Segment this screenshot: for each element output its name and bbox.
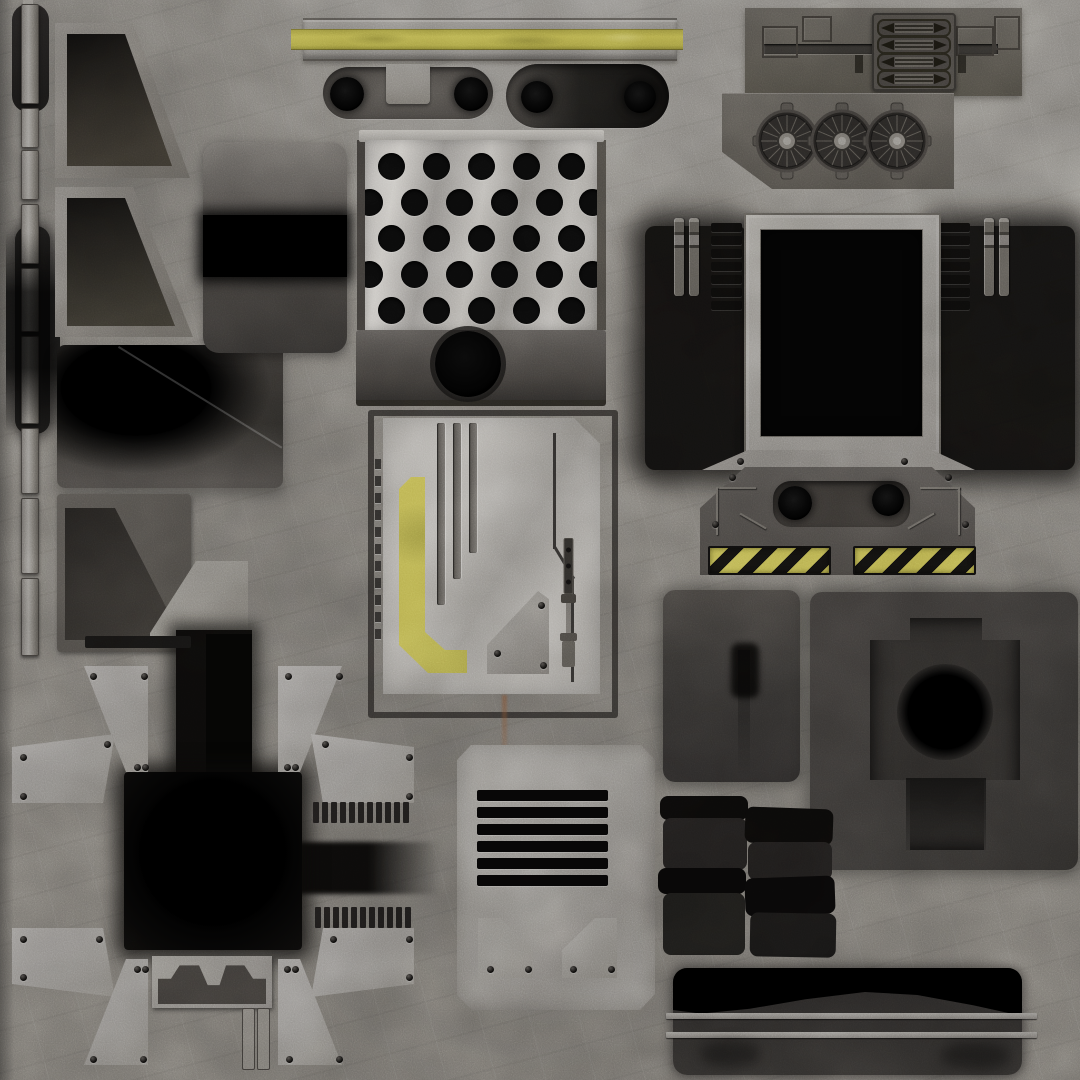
comb-tooth [360,907,366,928]
screw [284,966,291,973]
comb-tooth [315,907,321,928]
tick-mark [375,476,381,486]
rail-segment [21,498,39,574]
panel-groove [437,423,445,605]
ladder-bar [939,249,970,258]
screw [20,754,27,761]
screw [406,936,413,943]
hazard-stripe-strip [853,546,976,575]
screw [608,966,615,973]
comb-tooth [394,802,400,823]
hazard-stripe-strip [708,546,831,575]
comb-tooth [358,802,364,823]
perforation-hole [513,153,540,180]
bullet-tip-right [934,74,947,84]
circuit-trace [762,26,798,58]
screw [286,1056,293,1063]
ladder-bar [939,275,970,284]
smudge [940,1042,1010,1070]
ladder-bar [939,223,970,232]
capsule-hole [330,77,364,111]
screw [945,474,952,481]
screw [134,966,141,973]
tick-mark [375,544,381,554]
hazard-hole-right [872,484,904,516]
bullet-tip-left [881,23,894,33]
capsule-hole [454,77,488,111]
circuit-trace [958,487,960,535]
comb-tooth [331,802,337,823]
cross-recess-blob [897,664,993,760]
screw [322,741,329,748]
ladder-bar [939,301,970,310]
tick-mark [375,612,381,622]
yellow-warning-stripe [291,29,683,50]
bracket-bar [257,1008,270,1070]
vent-slat [477,807,608,818]
perforation-hole [558,225,585,252]
screw [134,764,141,771]
comb-tooth [405,907,411,928]
perforation-hole [468,297,495,324]
screw [142,764,149,771]
screw [336,1056,343,1063]
screw [285,673,292,680]
bottom-bar-line [666,1032,1037,1038]
smudge [700,1040,760,1068]
perforation-hole [491,261,518,288]
bolt-rod [999,218,1009,296]
rail-segment [21,150,39,200]
capsule-notch-tab [386,64,430,104]
piston-greeble [556,538,582,672]
window-glass [760,229,923,437]
perforation-hole [513,225,540,252]
bullet-tip-left [881,57,894,67]
perforated-edge-right [597,140,606,330]
star-shadow-vertical-core [206,634,252,784]
bullet-block [872,13,956,91]
comb-tooth [349,802,355,823]
tick-mark [375,510,381,520]
vent-slat [477,875,608,886]
comb-tooth [351,907,357,928]
panel-groove [469,423,477,553]
capsule-hole [521,81,553,113]
bolt-rod [674,218,684,296]
perforation-hole [401,189,428,216]
circuit-trace [716,487,756,489]
black-stack-bar [748,842,832,880]
bolt-rod [984,218,994,296]
comb-tooth [324,907,330,928]
rail-shadow-overlay [6,232,60,432]
rounded-square-black-band [203,215,347,277]
comb-tooth [387,907,393,928]
comb-tooth [396,907,402,928]
bullet-row [877,19,951,37]
tick-mark [375,561,381,571]
screw [538,602,545,609]
perforation-hole [365,261,383,288]
screw [494,650,501,657]
screw [487,966,494,973]
bullet-tip-right [934,40,947,50]
bullet-tip-left [881,74,894,84]
comb-tooth [403,802,409,823]
tick-mark [375,629,381,639]
panel-cut-line [553,433,556,549]
turbine-icon [862,102,932,180]
perforation-hole [446,261,473,288]
turbine [862,102,932,185]
black-stack-bar [663,893,745,955]
circuit-trace [920,487,960,489]
comb-tooth [322,802,328,823]
tick-mark [375,595,381,605]
black-stack-bar [658,868,746,894]
perforation-hole [513,297,540,324]
screw [140,1056,147,1063]
screw [20,793,27,800]
screw [406,974,413,981]
star-shadow-horizontal [298,842,440,894]
perforation-hole [446,189,473,216]
perforation-hole [558,297,585,324]
left-edge-shadow [0,0,14,1080]
bullet-ribs [895,40,933,50]
screw [90,1056,97,1063]
screw [525,966,532,973]
circuit-trace [956,26,994,56]
comb-tooth [369,907,375,928]
screw [104,741,111,748]
screw [406,793,413,800]
perforation-hole [365,189,383,216]
perforation-hole [378,153,405,180]
rail-segment [21,428,39,494]
screw [729,474,736,481]
circuit-trace [802,16,832,42]
comb-tooth [378,907,384,928]
comb-tooth [340,802,346,823]
texture-sheet [0,0,1080,1080]
screw [330,936,337,943]
vent-slat [477,824,608,835]
large-bore-hole [435,331,501,397]
tick-mark [375,459,381,469]
comb-tooth [333,907,339,928]
dark-panel-small-streak [738,650,750,780]
bullet-tip-right [934,57,947,67]
screw [20,936,27,943]
perforation-hole [423,153,450,180]
perforation-hole [558,153,585,180]
ladder-bar [711,249,742,258]
ladder-bar [939,236,970,245]
dark-bar [85,636,191,648]
perforation-hole [579,261,598,288]
hanging-tab [958,55,966,73]
star-center-square [124,772,302,950]
ladder-bar [711,262,742,271]
bullet-row [877,70,951,88]
perforated-edge-left [357,140,365,330]
rail-segment [21,108,39,148]
bullet-row [877,36,951,54]
tick-mark [375,578,381,588]
left-dark-panel [57,345,283,488]
bullet-ribs [895,23,933,33]
ladder-bar [939,262,970,271]
comb-tooth [367,802,373,823]
ladder-bar [711,236,742,245]
vent-slat [477,841,608,852]
comb-tooth [342,907,348,928]
bullet-tip-left [881,40,894,50]
black-stack-bar [660,796,748,820]
black-stack-bar [744,806,833,845]
ladder-bar [711,275,742,284]
bottom-bar-line [666,1013,1037,1019]
comb-tooth [385,802,391,823]
screw [336,673,343,680]
screw [142,966,149,973]
bullet-ribs [895,57,933,67]
bullet-tip-right [934,23,947,33]
perforation-hole [468,225,495,252]
bracket-bar [242,1008,255,1070]
vent-slat [477,790,608,801]
cross-recess-tail [906,778,986,850]
screw [570,966,577,973]
ladder-bar [711,223,742,232]
rail-segment [21,578,39,656]
perforation-hole [401,261,428,288]
perforation-hole [536,189,563,216]
comb-tooth [313,802,319,823]
screw [20,974,27,981]
panel-groove [453,423,461,579]
perforated-plate [365,140,597,330]
perforation-hole [468,153,495,180]
tick-mark [375,493,381,503]
comb-tooth [376,802,382,823]
bolt-rod [689,218,699,296]
perforation-hole [536,261,563,288]
perforation-hole [423,225,450,252]
perforation-hole [491,189,518,216]
circuit-trace [994,16,1020,50]
vent-slat [477,858,608,869]
screw [737,458,744,465]
screw [540,662,547,669]
black-stack-bar [750,912,837,957]
hazard-hole-left [778,486,812,520]
screw [901,458,908,465]
screw [292,966,299,973]
black-stack-bar [663,818,747,870]
perforation-hole [378,225,405,252]
bullet-row [877,53,951,71]
screw [141,673,148,680]
perforation-hole [579,189,598,216]
screw [284,764,291,771]
rail-segment [21,4,39,104]
ladder-bar [939,288,970,297]
perforation-hole [423,297,450,324]
screw [406,754,413,761]
ladder-bar [711,288,742,297]
tick-mark [375,527,381,537]
screw [962,521,969,528]
perforation-hole [378,297,405,324]
screw [292,764,299,771]
hanging-tab [855,55,863,73]
screw [96,936,103,943]
screw [712,521,719,528]
bullet-ribs [895,74,933,84]
ladder-bar [711,301,742,310]
screw [90,673,97,680]
capsule-hole [624,81,656,113]
black-stack-bar [744,875,835,916]
